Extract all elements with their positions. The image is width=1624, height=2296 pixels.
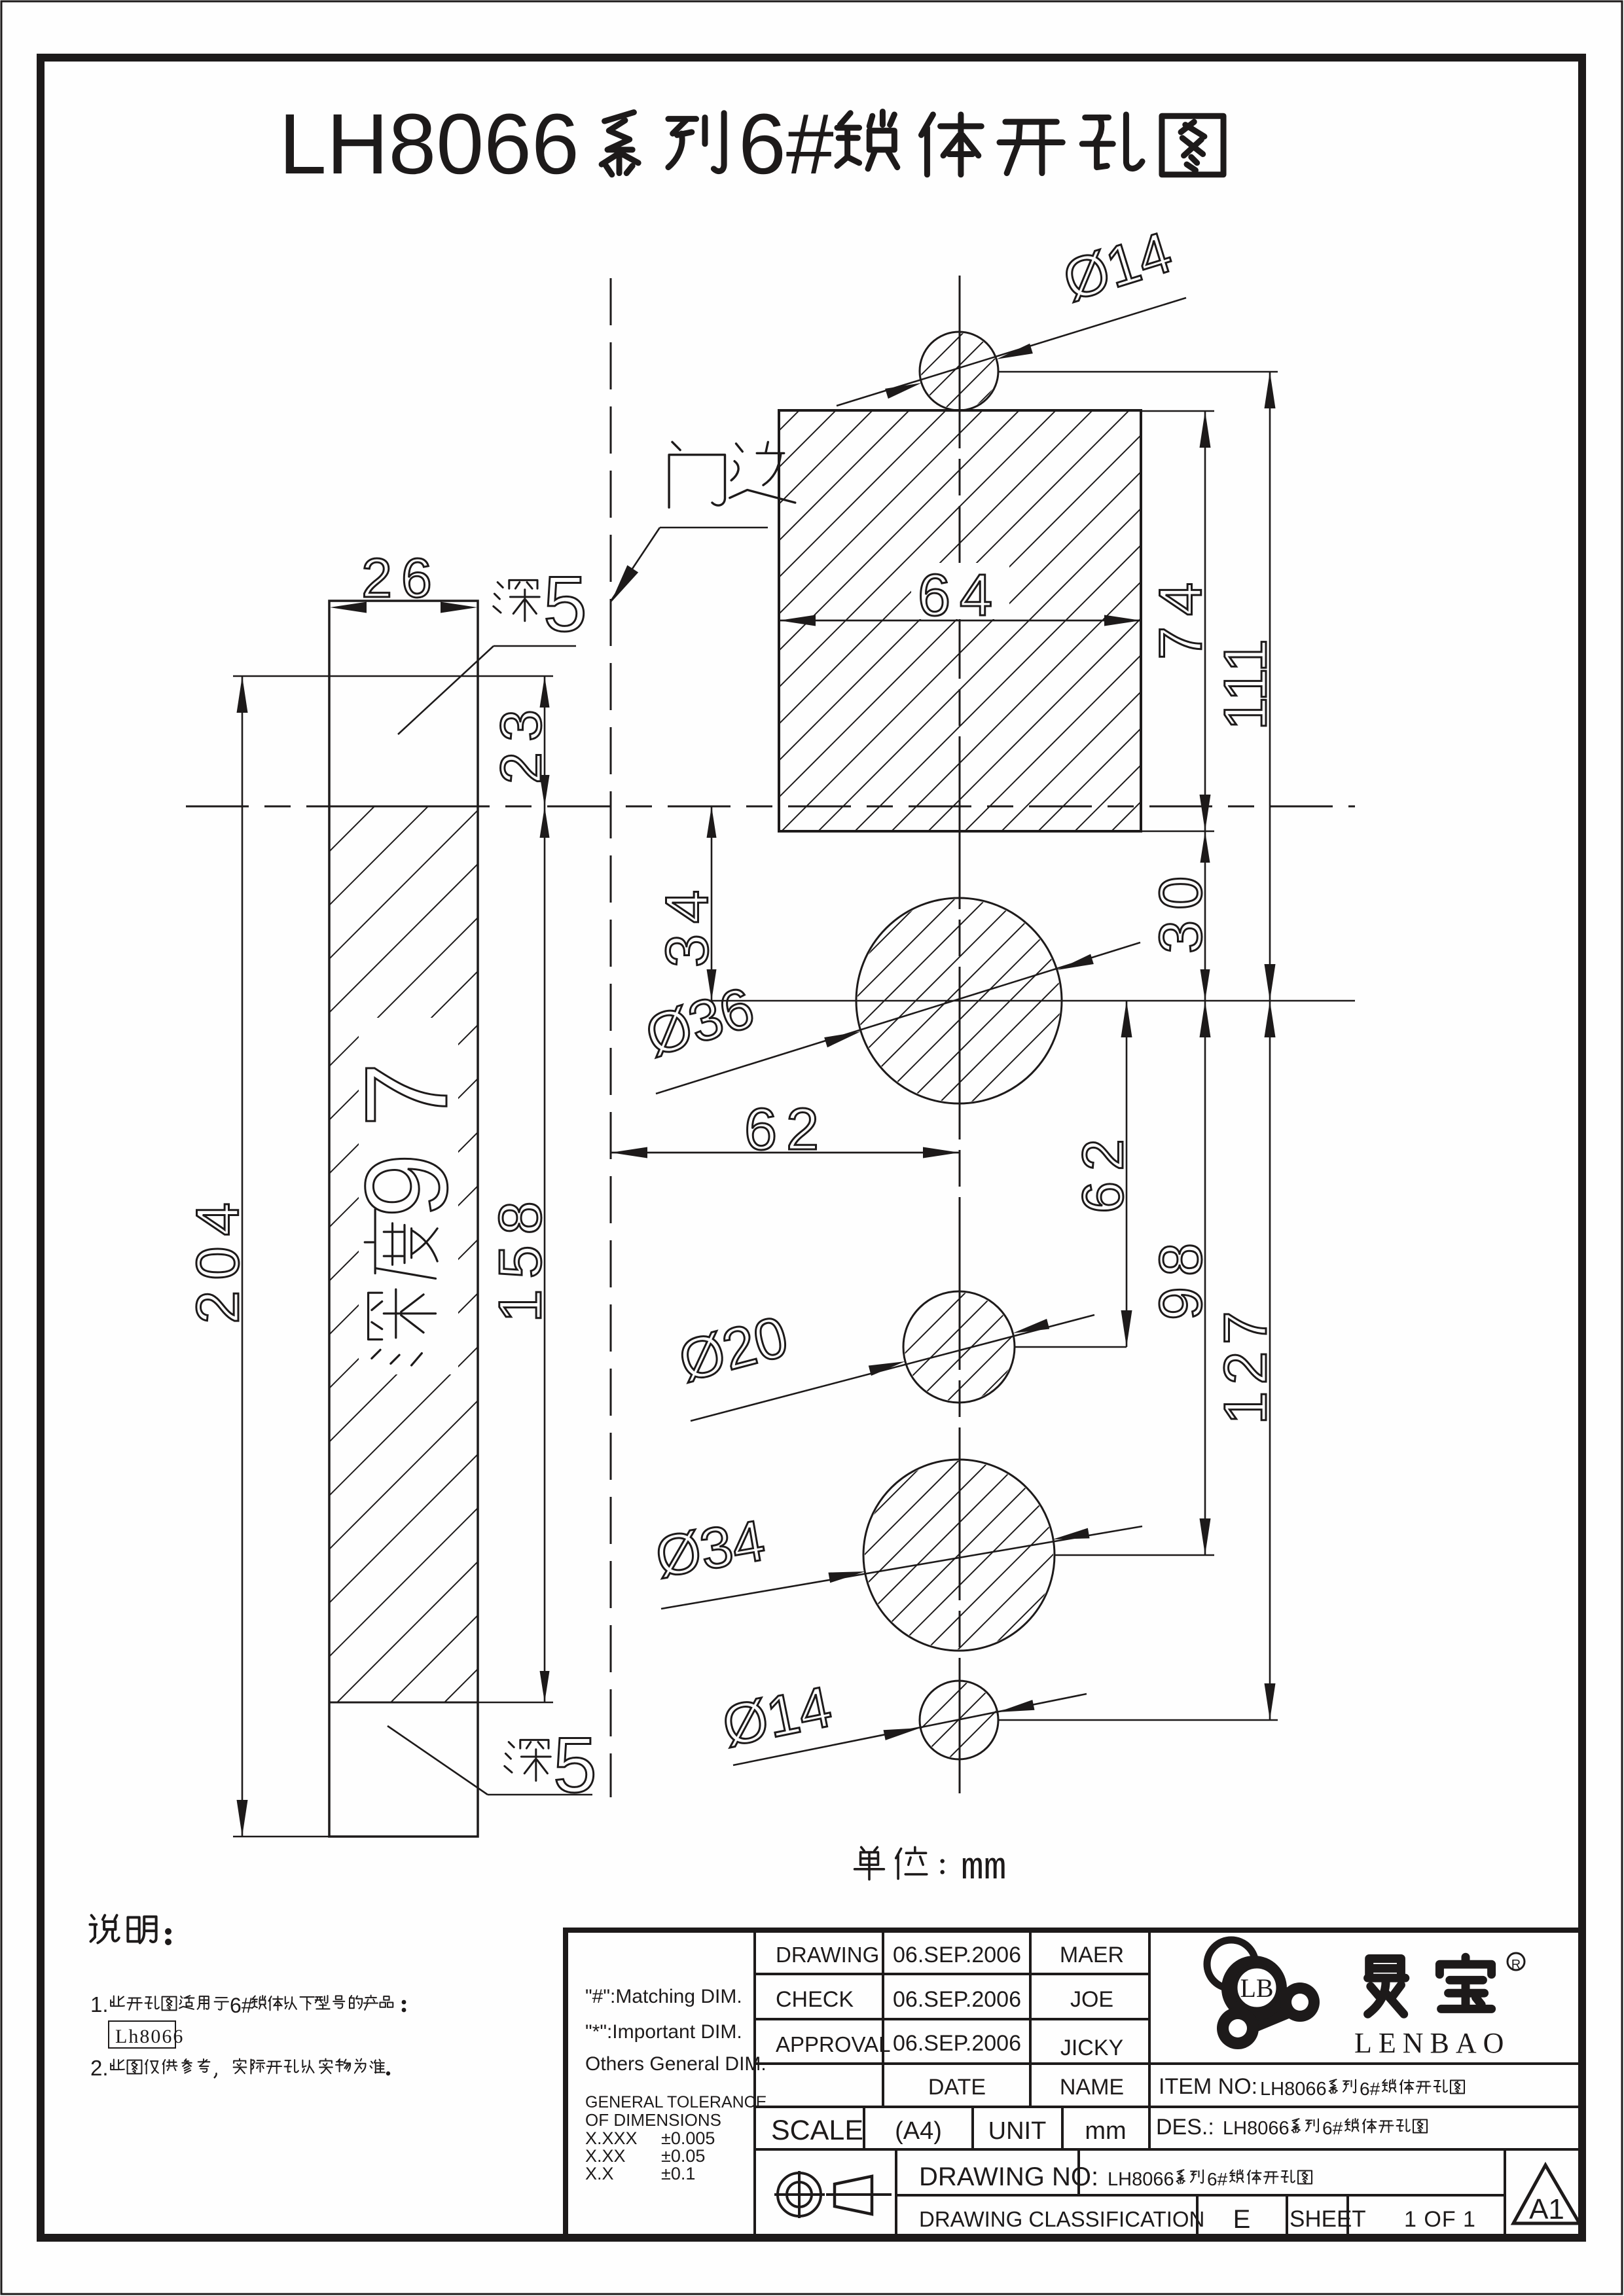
svg-text:5: 5	[553, 1721, 597, 1809]
svg-text:LH8066: LH8066	[1108, 2169, 1174, 2190]
svg-text:(A4): (A4)	[895, 2117, 942, 2145]
svg-text:6#: 6#	[1207, 2169, 1228, 2189]
svg-text:6#: 6#	[230, 1994, 253, 2017]
svg-text:62: 62	[1070, 1128, 1135, 1213]
svg-text:MAER: MAER	[1060, 1943, 1124, 1967]
svg-text:LH8066: LH8066	[1223, 2118, 1290, 2139]
svg-text:97: 97	[341, 1036, 471, 1218]
svg-text:62: 62	[744, 1097, 828, 1162]
svg-text:OF DIMENSIONS: OF DIMENSIONS	[585, 2110, 721, 2130]
svg-text:204: 204	[185, 1192, 251, 1324]
svg-text:2.: 2.	[90, 2056, 109, 2080]
svg-text:"*":Important DIM.: "*":Important DIM.	[585, 2021, 742, 2043]
svg-text:127: 127	[1212, 1304, 1279, 1425]
svg-text:DRAWING: DRAWING	[776, 1943, 879, 1967]
svg-text:06.SEP.2006: 06.SEP.2006	[893, 1987, 1021, 2012]
svg-text:LB: LB	[1240, 1973, 1273, 2003]
svg-text:A1: A1	[1529, 2193, 1564, 2225]
svg-text:SCALE: SCALE	[771, 2115, 863, 2146]
svg-text:X.X: X.X	[585, 2164, 614, 2183]
svg-text:JICKY: JICKY	[1060, 2036, 1123, 2060]
svg-text:26: 26	[361, 547, 441, 609]
svg-text:±0.005: ±0.005	[661, 2128, 715, 2148]
svg-text:SHEET: SHEET	[1290, 2206, 1366, 2232]
svg-text:ITEM NO:: ITEM NO:	[1159, 2074, 1257, 2099]
svg-text:1.: 1.	[90, 1992, 109, 2017]
svg-text:23: 23	[488, 699, 553, 784]
svg-text:DRAWING NO:: DRAWING NO:	[919, 2162, 1098, 2191]
svg-text:mm: mm	[1085, 2117, 1126, 2145]
svg-text:111: 111	[1212, 639, 1279, 730]
svg-text:06.SEP.2006: 06.SEP.2006	[893, 2031, 1021, 2056]
svg-text:"#":Matching DIM.: "#":Matching DIM.	[585, 1986, 742, 2007]
svg-text:DES.:: DES.:	[1156, 2115, 1214, 2140]
svg-text:74: 74	[1147, 572, 1214, 660]
svg-text:R: R	[1511, 1958, 1521, 1972]
svg-text:5: 5	[543, 560, 587, 648]
svg-text:±0.05: ±0.05	[661, 2146, 705, 2166]
svg-text:Lh8066: Lh8066	[115, 2026, 184, 2047]
svg-text:X.XXX: X.XXX	[585, 2128, 638, 2148]
svg-text:mm: mm	[961, 1848, 1007, 1890]
svg-text:34: 34	[654, 880, 721, 967]
svg-text:Others General DIM.: Others General DIM.	[585, 2053, 767, 2075]
svg-text:UNIT: UNIT	[988, 2117, 1047, 2145]
svg-text:6#: 6#	[1322, 2118, 1343, 2138]
svg-text:CHECK: CHECK	[776, 1987, 854, 2012]
svg-text:64: 64	[918, 563, 1001, 628]
svg-text:E: E	[1233, 2205, 1251, 2234]
svg-text:GENERAL TOLERANCE: GENERAL TOLERANCE	[585, 2093, 767, 2111]
svg-text:NAME: NAME	[1060, 2075, 1124, 2100]
svg-text:LH8066: LH8066	[279, 96, 579, 192]
svg-text:158: 158	[487, 1191, 554, 1323]
svg-text:±0.1: ±0.1	[661, 2164, 695, 2183]
svg-text:DRAWING CLASSIFICATION: DRAWING CLASSIFICATION	[919, 2207, 1204, 2231]
svg-text:LENBAO: LENBAO	[1354, 2027, 1510, 2059]
svg-text:06.SEP.2006: 06.SEP.2006	[893, 1943, 1021, 1967]
svg-text:DATE: DATE	[928, 2075, 986, 2100]
svg-text:6#: 6#	[738, 96, 834, 192]
svg-text:X.XX: X.XX	[585, 2146, 626, 2166]
svg-text:JOE: JOE	[1070, 1987, 1113, 2012]
svg-text:6#: 6#	[1360, 2079, 1380, 2099]
svg-text:98: 98	[1147, 1232, 1214, 1320]
svg-text:30: 30	[1147, 866, 1214, 954]
svg-text:LH8066: LH8066	[1260, 2079, 1327, 2100]
svg-text:1 OF 1: 1 OF 1	[1404, 2207, 1476, 2232]
svg-text:APPROVAL: APPROVAL	[776, 2032, 890, 2056]
